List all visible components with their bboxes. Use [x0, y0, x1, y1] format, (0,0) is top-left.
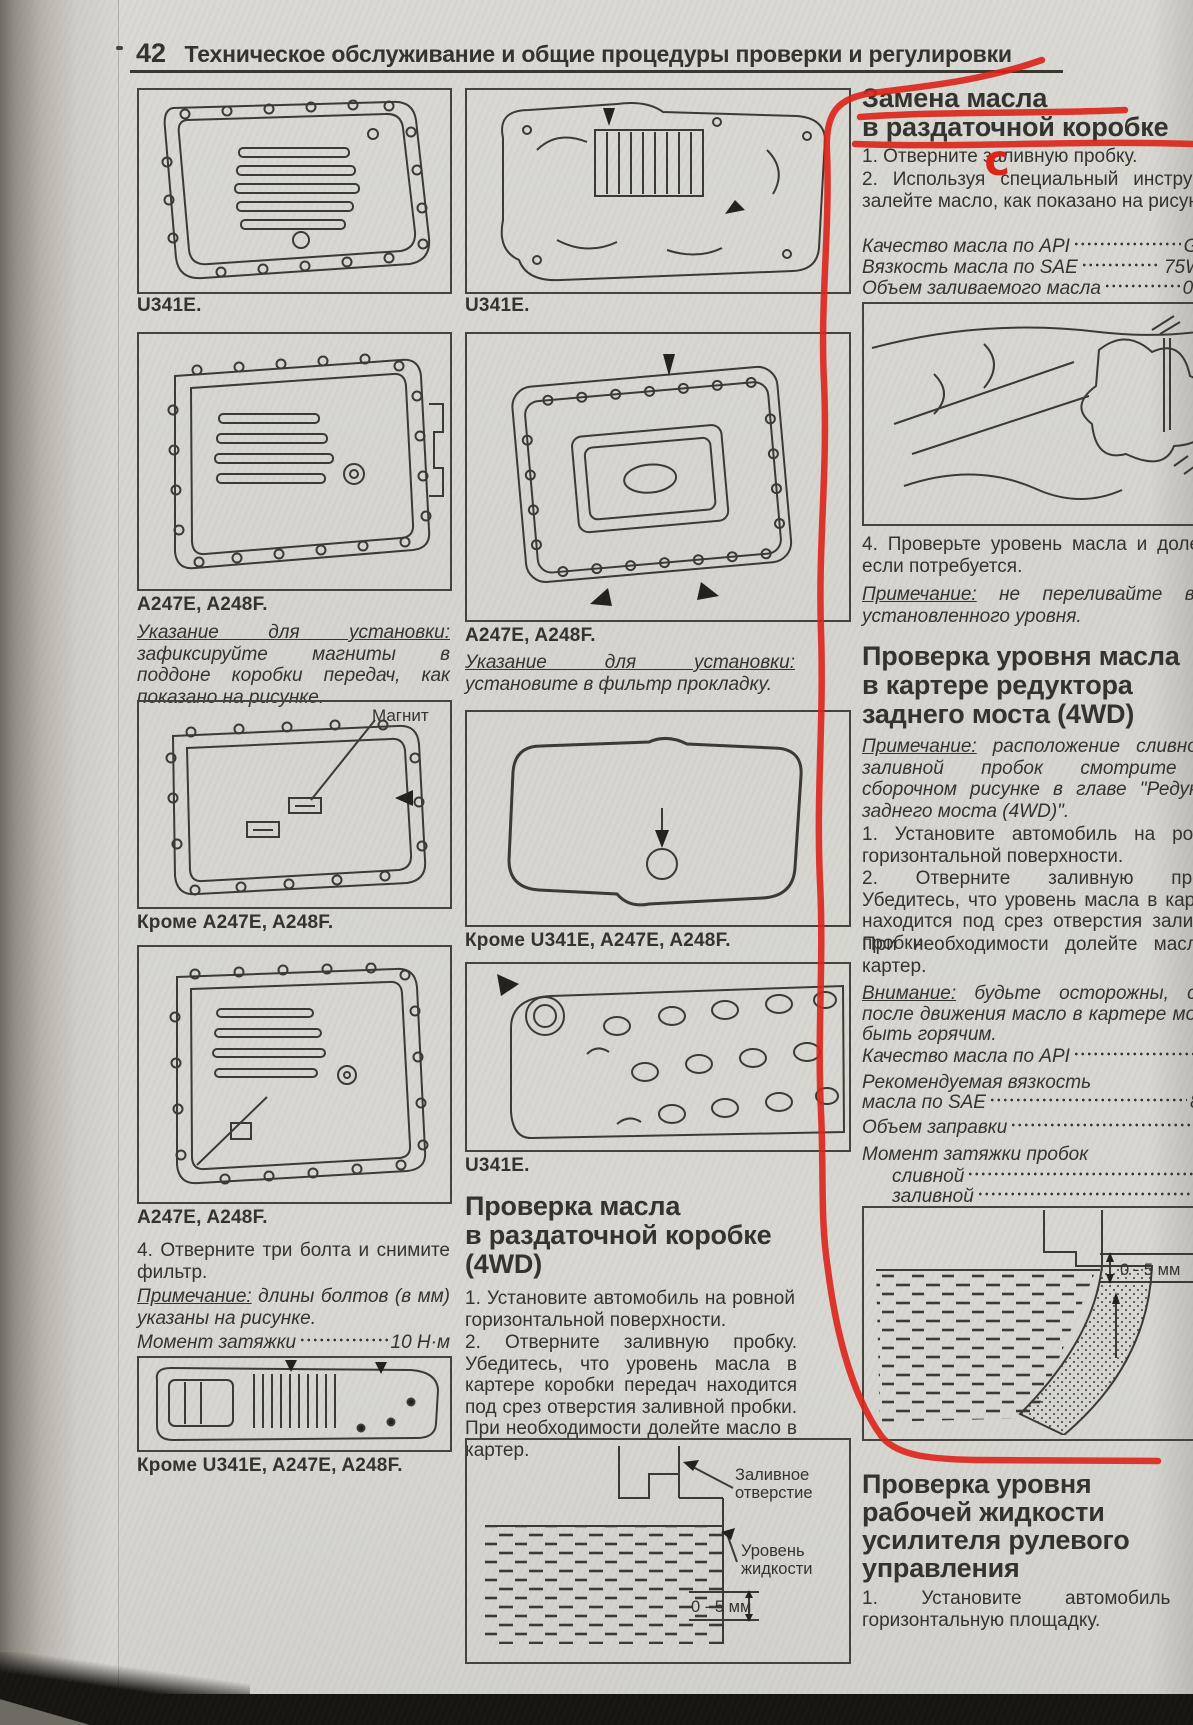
step-level-area: 1. Установите автомобиль на горизонтальн… — [862, 1588, 1193, 1631]
note-label: Примечание: — [862, 584, 977, 605]
spec-value: GL — [1184, 236, 1193, 258]
oil-pan-drawing — [139, 334, 446, 585]
spec-label: Момент затяжки — [137, 1332, 296, 1354]
spec-label: заливной — [892, 1186, 974, 1208]
torque-spec-row: Момент затяжки10 Н·м — [137, 1332, 450, 1353]
section-title-transfer-case-check: Проверка масла в раздаточной коробке (4W… — [465, 1192, 835, 1279]
figure-caption: A247E, A248F. — [137, 1207, 268, 1229]
step-level-surface: 1. Установите автомобиль на ровной гориз… — [465, 1288, 795, 1331]
svg-text:жидкости: жидкости — [741, 1560, 813, 1578]
install-note-label: Указание для установки: — [137, 622, 450, 643]
spec-row: Объем заливаемого масла0,9 — [862, 278, 1193, 299]
figure-caption: Кроме U341E, A247E, A248F. — [465, 930, 731, 952]
figure-left-u341e-oil-pan — [137, 88, 452, 294]
spec-label: сливной — [892, 1166, 964, 1188]
ink-speck — [116, 46, 123, 50]
step-check-level: 4. Проверьте уровень масла и долейте, ес… — [862, 534, 1193, 577]
spec-viscosity-line1: Рекомендуемая вязкость — [862, 1072, 1091, 1094]
install-note-left: Указание для установки: зафиксируйте маг… — [137, 622, 450, 708]
install-note-label: Указание для установки: — [465, 652, 795, 673]
svg-text:отверстие: отверстие — [735, 1484, 813, 1502]
oil-pan-drawing — [139, 90, 446, 288]
figure-left-magnet-pan — [137, 700, 452, 909]
pointer-arrow-icon — [603, 108, 615, 126]
book-binding-shadow — [0, 0, 119, 1725]
section-title-transfer-case-oil-change: Замена масла в раздаточной коробке — [862, 84, 1193, 142]
figure-caption: A247E, A248F. — [137, 594, 268, 616]
spec-row: Объем заправки0,5 — [862, 1117, 1193, 1138]
scan-edge-bottom — [0, 1694, 1193, 1725]
warning-label: Внимание: — [862, 983, 956, 1004]
dot-leader — [1073, 1046, 1193, 1062]
header-rule — [130, 70, 1063, 73]
spec-label: Объем заливаемого масла — [862, 278, 1101, 300]
spec-value: 0,9 — [1183, 278, 1193, 300]
pointer-arrow-icon — [725, 200, 745, 214]
spec-label: Качество масла по API — [862, 236, 1070, 258]
step-level-surface: 1. Установите автомобиль на ровной гориз… — [862, 824, 1193, 867]
note-label: Примечание: — [862, 736, 977, 757]
diagram-label-gap: 0 - 5 мм — [691, 1598, 751, 1616]
figure-caption: A247E, A248F. — [465, 625, 596, 647]
gasket-outline-drawing — [467, 712, 845, 921]
spec-row: масла по SAE85W- — [862, 1092, 1193, 1113]
dot-leader — [1104, 278, 1180, 294]
spec-table-transfer-case: Качество масла по APIGL Вязкость масла п… — [862, 236, 1193, 299]
install-note-text: установите в фильтр прокладку. — [465, 674, 772, 695]
pointer-arrow-icon — [375, 1362, 387, 1374]
figure-right-axle-level-diagram: 0 - 5 мм — [862, 1206, 1193, 1441]
hot-oil-warning: Внимание: будьте осторожны, сразу после … — [862, 984, 1193, 1046]
step-fill-oil: 2. Используя специальный инструмент зале… — [862, 169, 1193, 212]
figure-caption: Кроме U341E, A247E, A248F. — [137, 1455, 403, 1477]
figure-caption: U341E. — [465, 1155, 530, 1177]
engine-bay-drawing — [864, 304, 1193, 520]
oil-pan-gasket-drawing — [467, 334, 845, 616]
axle-level-diagram: 0 - 5 мм — [864, 1208, 1193, 1435]
figure-middle-u341e-filter — [465, 962, 851, 1152]
figure-left-a247e-oil-pan — [137, 332, 452, 591]
dot-leader — [977, 1186, 1193, 1202]
bolt-length-note: Примечание: длины болтов (в мм) указаны … — [137, 1286, 450, 1329]
step-remove-filter: 4. Отверните три болта и снимите фильтр. — [137, 1240, 450, 1283]
pointer-arrow-icon — [497, 974, 519, 996]
figure-left-a247e-pan-bottom — [137, 945, 452, 1204]
figure-caption: U341E. — [137, 295, 202, 317]
section-title-rear-axle-check: Проверка уровня масла в картере редуктор… — [862, 642, 1193, 729]
overfill-note: Примечание: не переливайте выше установл… — [862, 584, 1193, 627]
spec-row: Качество масла по APIGL — [862, 1046, 1193, 1067]
step-unscrew-plug: 1. Отверните заливную пробку. — [862, 146, 1193, 168]
dot-leader — [1010, 1117, 1193, 1133]
fluid-level-diagram: Заливное отверстие Уровень жидкости 0 - … — [467, 1440, 845, 1658]
spec-label: масла по SAE — [862, 1092, 986, 1114]
spec-row: Вязкость масла по SAE75W- — [862, 257, 1193, 278]
oil-pan-with-magnets-drawing — [139, 702, 446, 903]
figure-caption: Кроме A247E, A248F. — [137, 912, 333, 934]
spec-torque-header: Момент затяжки пробок — [862, 1144, 1088, 1166]
figure-left-valve-body — [137, 1356, 452, 1452]
plug-location-note: Примечание: расположение сливной и залив… — [862, 736, 1193, 822]
pointer-arrow-icon — [285, 1360, 297, 1372]
figure-middle-filter-gasket-outline — [465, 710, 851, 927]
step-top-up: При необходимости долейте масло в картер… — [862, 934, 1193, 977]
spec-value: 75W- — [1164, 257, 1193, 279]
figure-right-engine-bay — [862, 302, 1193, 526]
spec-label: Вязкость масла по SAE — [862, 257, 1078, 279]
oil-pan-drawing — [139, 947, 446, 1198]
pointer-arrow-icon — [590, 588, 612, 606]
spec-row: сливной39 Н — [862, 1166, 1193, 1187]
transmission-case-drawing — [467, 90, 845, 288]
scanned-manual-page: 42 Техническое обслуживание и общие проц… — [0, 0, 1193, 1725]
filter-plate-drawing — [467, 964, 845, 1146]
pointer-arrow-icon — [395, 790, 413, 806]
figure-caption: U341E. — [465, 295, 530, 317]
dot-leader — [299, 1332, 387, 1348]
diagram-label-fill-hole: Заливное — [735, 1466, 809, 1484]
figure-middle-a247e-pan-gasket — [465, 332, 851, 622]
page-number: 42 — [136, 38, 166, 68]
install-note-middle: Указание для установки: установите в фил… — [465, 652, 795, 695]
dot-leader — [1081, 257, 1161, 273]
spec-value: 10 Н·м — [391, 1332, 451, 1354]
red-underline — [855, 143, 1192, 145]
install-note-text: зафиксируйте магниты в поддоне коробки п… — [137, 644, 450, 708]
pointer-arrow-icon — [697, 582, 719, 600]
section-title-power-steering-check: Проверка уровня рабочей жидкости усилите… — [862, 1470, 1193, 1582]
dot-leader — [989, 1092, 1187, 1108]
figure-middle-u341e-case — [465, 88, 851, 294]
note-label: Примечание: — [137, 1286, 252, 1307]
diagram-label-fluid-level: Уровень — [741, 1542, 805, 1560]
spec-label: Качество масла по API — [862, 1046, 1070, 1068]
figure-middle-level-diagram: Заливное отверстие Уровень жидкости 0 - … — [465, 1438, 851, 1664]
spec-row: заливной98 Н — [862, 1186, 1193, 1207]
magnet-label: Магнит — [372, 706, 429, 726]
spec-row: Качество масла по APIGL — [862, 236, 1193, 257]
scan-edge-corner — [0, 1652, 250, 1696]
page-header: 42 Техническое обслуживание и общие проц… — [136, 38, 1146, 69]
dot-leader — [1073, 236, 1181, 252]
pointer-arrow-icon — [663, 354, 675, 376]
diagram-label-gap: 0 - 5 мм — [1120, 1261, 1180, 1279]
pointer-arrow-icon — [655, 830, 669, 848]
header-title: Техническое обслуживание и общие процеду… — [185, 41, 1012, 67]
valve-body-drawing — [139, 1358, 446, 1446]
spec-label: Объем заправки — [862, 1117, 1007, 1139]
red-letter-annotation: с — [982, 135, 1012, 186]
dot-leader — [967, 1166, 1193, 1182]
